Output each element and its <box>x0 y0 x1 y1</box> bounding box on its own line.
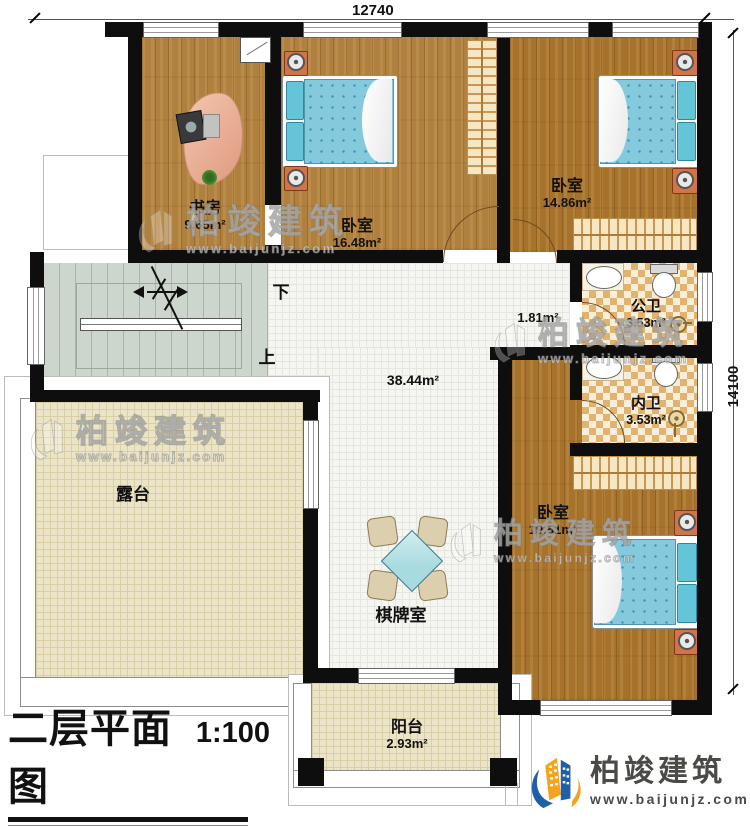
wall-segment <box>303 390 318 420</box>
lamp-icon <box>678 632 696 650</box>
dimension-tick <box>29 12 40 23</box>
keyboard-icon <box>203 114 220 138</box>
room-label-terrace: 露台 <box>73 485 193 504</box>
wall-segment <box>557 250 697 263</box>
roof-edge-line <box>505 783 506 806</box>
lamp-icon <box>676 171 694 189</box>
plan-scale: 1:100 <box>196 717 270 750</box>
wall-segment <box>128 37 142 252</box>
wall-segment <box>570 345 697 358</box>
corner-block <box>298 758 324 786</box>
room-label-inner-bath: 内卫3.53m² <box>586 396 706 427</box>
plant-icon <box>202 170 217 185</box>
lamp-icon <box>676 53 694 71</box>
terrace-floor <box>36 402 303 677</box>
wall-segment <box>570 263 582 302</box>
corridor-area-label: 1.81m² <box>478 311 598 326</box>
wardrobe <box>573 218 697 252</box>
bed-pillow <box>286 81 304 120</box>
stair-handrail <box>80 318 242 331</box>
window <box>143 22 219 38</box>
plan-title: 二层平面图 <box>8 696 182 812</box>
window <box>27 287 45 365</box>
sink <box>586 356 622 379</box>
wall-segment <box>128 250 443 263</box>
dimension-width: 12740 <box>352 2 394 19</box>
balcony-door <box>358 668 455 684</box>
wall-segment <box>30 390 320 402</box>
wall-segment <box>453 668 500 683</box>
brand-logo: 柏竣建筑 www.baijunjz.com <box>527 752 749 812</box>
balcony-bottom-parapet <box>293 770 520 788</box>
window <box>540 700 672 716</box>
room-label-balcony: 阳台2.93m² <box>347 719 467 751</box>
window <box>487 22 589 38</box>
terrace-left-parapet <box>20 398 36 680</box>
brand-url: www.baijunjz.com <box>590 791 749 807</box>
hall-floor-upper <box>268 263 570 347</box>
wall-segment <box>30 252 44 287</box>
room-label-bedroom2: 卧室16.48m² <box>297 218 417 250</box>
lamp-icon <box>287 53 305 71</box>
stair-up-label: 上 <box>237 348 297 367</box>
wall-segment <box>697 22 712 272</box>
bed-pillow <box>286 122 304 161</box>
brand-name: 柏竣建筑 <box>590 757 749 787</box>
room-label-public-bath: 公卫3.53m² <box>586 299 706 330</box>
chess-room-floor <box>318 347 498 683</box>
window <box>303 22 402 38</box>
wall-segment <box>587 22 612 37</box>
floor-plan: 书房9.65m² 卧室16.48m² 卧室14.86m² 公卫3.53m² 内卫… <box>0 0 750 826</box>
window <box>612 22 699 38</box>
room-label-chess: 棋牌室 <box>341 606 461 625</box>
corner-block <box>490 758 517 786</box>
bed-pillow <box>677 81 696 120</box>
wall-segment <box>105 22 143 37</box>
dimension-height: 14100 <box>725 359 742 414</box>
wall-segment <box>217 22 303 37</box>
bed-pillow <box>677 543 697 582</box>
wall-segment <box>400 22 487 37</box>
wall-segment <box>670 700 712 715</box>
wardrobe <box>573 456 697 490</box>
stair-arrow-left-icon <box>133 286 144 298</box>
brand-logo-icon <box>527 752 581 812</box>
bed-pillow <box>677 122 696 161</box>
dimension-line-top <box>28 19 734 20</box>
wall-segment <box>570 443 697 456</box>
room-label-study: 书房9.65m² <box>145 200 265 232</box>
lamp-icon <box>678 513 696 531</box>
sink <box>586 266 622 289</box>
toilet <box>652 272 676 298</box>
stair-arrow-right-icon <box>177 286 188 298</box>
wall-segment <box>316 668 358 683</box>
lamp-icon <box>287 169 305 187</box>
room-label-bedroom3: 卧室14.86m² <box>507 178 627 210</box>
title-block: 二层平面图 1:100 本层建筑面积: 133.68m² 层高: 3.3m <box>8 696 270 826</box>
toilet <box>654 361 678 387</box>
chair <box>366 515 399 548</box>
hall-area-label: 38.44m² <box>353 373 473 389</box>
terrace-door <box>303 420 319 509</box>
wall-segment <box>303 507 318 683</box>
roof-edge-line <box>517 783 518 806</box>
upper-left-void <box>43 155 130 250</box>
wardrobe <box>467 40 497 175</box>
monitor-icon <box>176 110 207 144</box>
title-underline-thick <box>8 817 248 822</box>
stair-down-label: 下 <box>251 283 311 302</box>
wall-segment <box>498 700 540 715</box>
wall-segment <box>697 410 712 715</box>
room-label-bedroom-master: 卧室19.51m² <box>493 505 613 537</box>
bed-pillow <box>677 584 697 623</box>
bed-blanket <box>362 79 392 162</box>
